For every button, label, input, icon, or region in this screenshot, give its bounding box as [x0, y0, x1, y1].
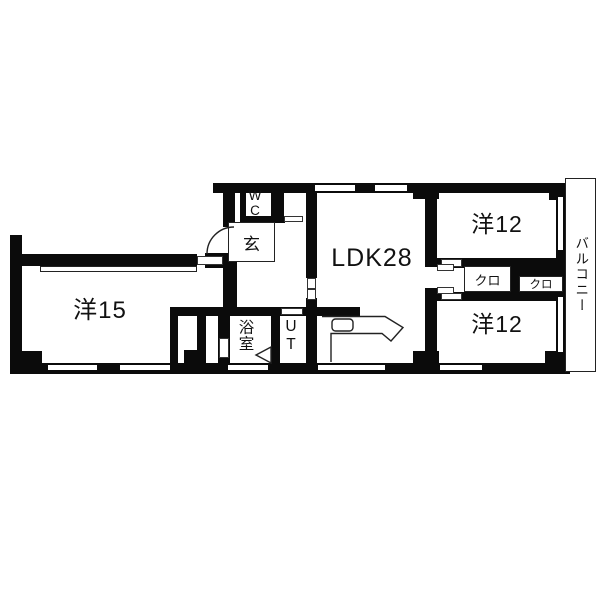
wall-wc-block: [271, 190, 284, 216]
room-label-west12-upper: 洋12: [452, 213, 542, 236]
wall-entry-upper: [223, 183, 235, 227]
window-top-1: [315, 184, 355, 192]
kitchen-counter-outline: [322, 317, 403, 363]
entrance-label: 玄: [243, 230, 260, 255]
door-west15: [197, 256, 223, 265]
floor-plan: 玄 クロ クロ バルコニー 洋15 LDK28 洋12 洋12 WC 浴室 UT: [0, 0, 600, 600]
kitchen-sink: [332, 319, 353, 331]
wall-closet-right: [197, 312, 206, 364]
door-wc: [284, 216, 303, 222]
room-label-utility: UT: [283, 318, 299, 354]
balcony: バルコニー: [565, 178, 596, 372]
window-top-2: [375, 184, 407, 192]
rail-west15: [40, 266, 197, 272]
wall-west15-top: [22, 254, 197, 266]
entrance-step-box: 玄: [228, 222, 275, 262]
pillar-bottom-right: [545, 351, 567, 364]
window-balcony-upper: [557, 197, 564, 250]
door-divider-1: [437, 264, 454, 271]
room-label-ldk: LDK28: [312, 246, 432, 272]
closet-a-label: クロ: [474, 270, 500, 289]
balcony-label: バルコニー: [574, 236, 588, 314]
closet-a-box: クロ: [464, 266, 511, 292]
closet-b-label: クロ: [530, 276, 553, 292]
pillar-top-center: [413, 183, 439, 199]
wall-closet-left: [170, 312, 178, 364]
door-hall-ldk-2: [307, 289, 316, 300]
closet-b-box: クロ: [519, 276, 563, 292]
window-bottom-5: [440, 364, 482, 371]
door-divider-2: [437, 287, 454, 294]
room-label-west12-lower: 洋12: [452, 313, 542, 336]
door-west12-lower: [441, 293, 462, 300]
room-label-wc: WC: [248, 188, 262, 218]
window-balcony-lower: [557, 297, 564, 352]
pillar-bottom-center: [413, 351, 439, 364]
bath-door-triangle: [256, 347, 271, 363]
room-label-west15: 洋15: [50, 299, 150, 323]
room-label-bath: 浴室: [237, 319, 253, 352]
door-utility: [281, 308, 303, 315]
pillar-closet: [184, 350, 198, 364]
door-hall-ldk-1: [307, 278, 316, 289]
window-bottom-3: [228, 364, 268, 371]
window-bottom-1: [48, 364, 97, 371]
wall-wc-left: [240, 190, 246, 217]
pillar-bottom-left: [20, 351, 42, 364]
door-bath-side: [219, 338, 229, 358]
wall-bath-ut-divider: [271, 316, 280, 364]
window-bottom-4: [318, 364, 385, 371]
window-bottom-2: [120, 364, 170, 371]
